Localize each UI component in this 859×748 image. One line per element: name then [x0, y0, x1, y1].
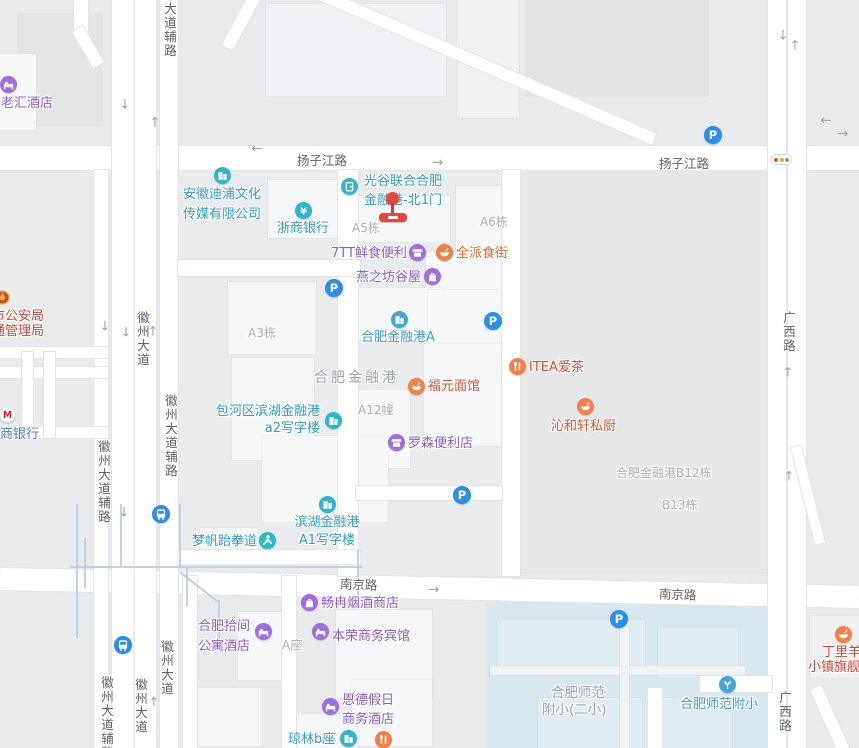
poi-itea-tea-forkknife-icon[interactable] — [509, 358, 526, 375]
poi-label-line: 招商银行 — [0, 427, 39, 443]
poi-baohe-a2-office-label[interactable]: 包河区滨湖金融港a2写字楼 — [214, 403, 320, 437]
direction-arrow: ↓ — [100, 320, 111, 335]
area-label: A座 — [282, 636, 302, 653]
poi-label-line: 公寓酒店 — [188, 637, 250, 657]
poi-label-line: 包河区滨湖金融港 — [214, 403, 320, 420]
svg-text:M: M — [2, 410, 11, 421]
traffic-light-icon — [771, 154, 792, 165]
building-block — [490, 666, 745, 675]
poi-label-line: 罗森便利店 — [408, 436, 473, 452]
poi-ende-holiday-hotel-label[interactable]: 恩德假日商务酒店 — [342, 691, 394, 729]
poi-guanggu-north-gate-1-door-icon[interactable] — [341, 178, 358, 195]
poi-shifan-primary-school-sprout-icon[interactable] — [719, 676, 736, 693]
poi-cmb-bank-cmb-icon[interactable]: M — [0, 406, 16, 423]
poi-label-line: 通管理局 — [0, 325, 44, 340]
poi-qinhexuan-kitchen-label[interactable]: 沁和轩私厨 — [551, 419, 616, 435]
road — [160, 0, 178, 748]
road-label: 徽州大道 — [131, 678, 150, 734]
poi-qinhexuan-kitchen-bowl-icon[interactable] — [577, 398, 594, 415]
poi-laohui-hotel-label[interactable]: 老汇酒店 — [1, 96, 53, 112]
poi-label-line: 琼林b座 — [288, 732, 335, 748]
poi-benrong-hotel-label[interactable]: 本荣商务宾馆 — [332, 629, 410, 645]
area-label: 合肥金融港B12栋 — [616, 464, 712, 481]
poi-ende-holiday-hotel-bed-icon[interactable] — [322, 698, 339, 715]
poi-label-line: a2写字楼 — [214, 420, 320, 437]
road — [222, 0, 260, 50]
poi-7tt-fresh-food-shop-icon[interactable] — [409, 244, 426, 261]
poi-food-poi-bottom-forkknife-icon[interactable] — [375, 731, 392, 748]
poi-changran-tobacco-label[interactable]: 畅冉烟酒商店 — [321, 596, 399, 612]
bus-station-icon[interactable] — [152, 505, 170, 523]
road — [356, 486, 502, 500]
road — [22, 352, 33, 438]
parking-icon[interactable]: P — [325, 279, 343, 297]
poi-dingliyang-flagship-label[interactable]: 丁里羊小镇旗舰店 — [808, 645, 859, 675]
waterway-line — [76, 504, 78, 638]
poi-label-line: 燕之坊谷屋 — [356, 270, 421, 286]
svg-text:P: P — [709, 128, 717, 142]
poi-mengfan-taekwondo-label[interactable]: 梦帆跆拳道 — [192, 534, 257, 550]
poi-label-line: 丁里羊 — [808, 645, 859, 660]
poi-yanzhifang-guwu-bag-icon[interactable] — [424, 268, 441, 285]
location-marker-base-slot — [388, 216, 398, 219]
svg-text:P: P — [458, 488, 466, 502]
road-label: 徽州大道辅路 — [94, 440, 113, 524]
poi-label-line: 金融港-北1门 — [364, 191, 442, 210]
road-label: 徽州大道 — [133, 311, 152, 367]
svg-text:P: P — [615, 612, 623, 626]
poi-hefei-financial-port-a-building-icon[interactable] — [391, 311, 408, 328]
direction-arrow: ↑ — [790, 39, 801, 54]
direction-arrow: ← — [821, 114, 832, 129]
svg-text:¥: ¥ — [300, 206, 307, 217]
svg-text:P: P — [489, 314, 497, 328]
road — [700, 676, 772, 692]
poi-label-line: 商务酒店 — [342, 710, 394, 729]
road-label: 扬子江路 — [659, 153, 709, 172]
road-label: 南京路 — [340, 573, 378, 593]
waterway-line — [70, 566, 362, 568]
direction-arrow: → — [429, 583, 440, 598]
waterway-line — [84, 538, 86, 588]
building-block — [424, 344, 508, 446]
poi-zheshang-bank-yen-icon[interactable]: ¥ — [295, 202, 312, 219]
poi-label-line: 全派食街 — [456, 246, 508, 262]
road — [648, 688, 662, 748]
poi-label-line: ITEA爱茶 — [529, 360, 584, 376]
poi-label-line: 滨湖金融港 — [291, 514, 363, 532]
building-block — [228, 282, 316, 354]
road-label: 徽州大道辅路 — [161, 394, 180, 478]
poi-changran-tobacco-bag-icon[interactable] — [301, 594, 318, 611]
poi-label-line: 梦帆跆拳道 — [192, 534, 257, 550]
area-label: 合肥金融港 — [314, 367, 399, 387]
building-block — [266, 4, 446, 96]
poi-label-line: 合肥师范附小 — [680, 697, 758, 713]
direction-arrow: ↑ — [783, 366, 794, 381]
road-median — [133, 0, 135, 748]
poi-fuyuan-noodle-bowl-icon[interactable] — [408, 378, 425, 395]
area-label: B13栋 — [662, 496, 698, 513]
poi-label-line: 7TT鲜食便利 — [331, 246, 407, 262]
road-label: 大道辅路 — [160, 2, 179, 58]
poi-label-line: 浙商银行 — [277, 221, 329, 237]
bus-station-icon[interactable] — [114, 636, 132, 654]
road-label: 徽州大道 — [157, 640, 176, 696]
poi-baohe-a2-office-building-icon[interactable] — [325, 412, 342, 429]
direction-arrow: → — [433, 156, 444, 171]
parking-icon[interactable]: P — [453, 486, 471, 504]
poi-label-line: 福元面馆 — [428, 379, 480, 395]
poi-police-bureau-badge-icon[interactable] — [0, 289, 11, 306]
poi-binhu-a1-office-label[interactable]: 滨湖金融港A1写字楼 — [291, 514, 363, 550]
poi-yanzhifang-guwu-label[interactable]: 燕之坊谷屋 — [356, 270, 421, 286]
poi-binhu-a1-office-building-icon[interactable] — [319, 496, 336, 513]
poi-label-line: 传媒有限公司 — [183, 205, 261, 225]
area-label: 附小(二小) — [542, 698, 607, 718]
direction-arrow: → — [838, 127, 849, 142]
poi-label-line: 畅冉烟酒商店 — [321, 596, 399, 612]
poi-label-line: A1写字楼 — [291, 532, 363, 550]
poi-label-line: 恩德假日 — [342, 691, 394, 710]
area-label: A6栋 — [480, 213, 508, 230]
building-block — [198, 688, 262, 746]
direction-arrow: ↓ — [120, 98, 131, 113]
poi-anhui-dipu-culture-building-icon[interactable] — [214, 167, 231, 184]
poi-lawson-store-label[interactable]: 罗森便利店 — [408, 436, 473, 452]
poi-label-line: 沁和轩私厨 — [551, 419, 616, 435]
poi-quanpai-food-street-label[interactable]: 全派食街 — [456, 246, 508, 262]
poi-benrong-hotel-bed-icon[interactable] — [312, 623, 329, 640]
poi-qionglin-b-building-icon[interactable] — [340, 730, 357, 747]
poi-cmb-bank-label[interactable]: 招商银行 — [0, 427, 39, 443]
direction-arrow: ↓ — [119, 506, 130, 521]
poi-shifan-primary-school-label[interactable]: 合肥师范附小 — [680, 697, 758, 713]
poi-label-line: 老汇酒店 — [1, 96, 53, 112]
road-label: 南京路 — [659, 583, 697, 603]
area-label: A12幢 — [358, 401, 393, 418]
road-label: 扬子江路 — [297, 150, 347, 169]
road — [178, 550, 360, 564]
poi-label-line: 合肥金融港A — [361, 330, 435, 346]
parking-icon[interactable]: P — [704, 126, 722, 144]
road — [810, 685, 854, 748]
poi-police-bureau-label[interactable]: 市公安局通管理局 — [0, 310, 44, 339]
poi-label-line: 小镇旗舰店 — [808, 660, 859, 675]
poi-lawson-store-shop-icon[interactable] — [388, 434, 405, 451]
building-block — [526, 0, 708, 96]
poi-itea-tea-label[interactable]: ITEA爱茶 — [529, 360, 584, 376]
direction-arrow: ↑ — [149, 696, 160, 711]
area-label: A5栋 — [352, 219, 380, 236]
poi-anhui-dipu-culture-label[interactable]: 安徽迪浦文化传媒有限公司 — [183, 185, 261, 224]
building-block — [620, 620, 629, 748]
poi-label-line: 合肥拾间 — [188, 617, 250, 637]
road — [282, 576, 296, 748]
svg-text:P: P — [330, 281, 338, 295]
poi-guanggu-north-gate-1-label[interactable]: 光谷联合合肥金融港-北1门 — [364, 172, 442, 210]
poi-7tt-fresh-food-label[interactable]: 7TT鲜食便利 — [331, 246, 407, 262]
map-canvas[interactable]: ←→←→↓↑↓↓↑↓↑↑↑↓→↑扬子江路扬子江路南京路南京路广西路广西路徽州大道… — [0, 0, 859, 748]
poi-hefei-financial-port-a-label[interactable]: 合肥金融港A — [361, 330, 435, 346]
direction-arrow: ↑ — [150, 116, 161, 131]
direction-arrow: ↓ — [121, 326, 132, 341]
poi-label-line: 市公安局 — [0, 310, 44, 325]
poi-dingliyang-flagship-bowl-icon[interactable] — [835, 626, 852, 643]
parking-icon[interactable]: P — [610, 610, 628, 628]
poi-quanpai-food-street-bowl-icon[interactable] — [436, 244, 453, 261]
parking-icon[interactable]: P — [484, 312, 502, 330]
area-label: A3栋 — [248, 324, 276, 341]
poi-fuyuan-noodle-label[interactable]: 福元面馆 — [428, 379, 480, 395]
road — [44, 352, 55, 438]
poi-label-line: 安徽迪浦文化 — [183, 185, 261, 205]
direction-arrow: ↓ — [778, 29, 789, 44]
waterway-line — [179, 504, 181, 566]
direction-arrow: ← — [252, 142, 263, 157]
poi-shijian-apartment-hotel-label[interactable]: 合肥拾间公寓酒店 — [188, 617, 250, 657]
poi-label-line: 光谷联合合肥 — [364, 172, 442, 191]
direction-arrow: ↑ — [784, 470, 795, 485]
poi-shijian-apartment-hotel-bed-icon[interactable] — [255, 623, 272, 640]
road — [178, 260, 360, 276]
poi-label-line: 本荣商务宾馆 — [332, 629, 410, 645]
poi-laohui-hotel-bed-icon[interactable] — [0, 76, 17, 93]
poi-mengfan-taekwondo-person-icon[interactable] — [259, 532, 276, 549]
road-label: 广西路 — [775, 691, 794, 733]
waterway-line — [186, 566, 188, 606]
poi-zheshang-bank-label[interactable]: 浙商银行 — [277, 221, 329, 237]
poi-qionglin-b-label[interactable]: 琼林b座 — [288, 732, 335, 748]
road-label: 徽州大道辅路 — [97, 676, 116, 748]
road-label: 广西路 — [779, 311, 798, 353]
